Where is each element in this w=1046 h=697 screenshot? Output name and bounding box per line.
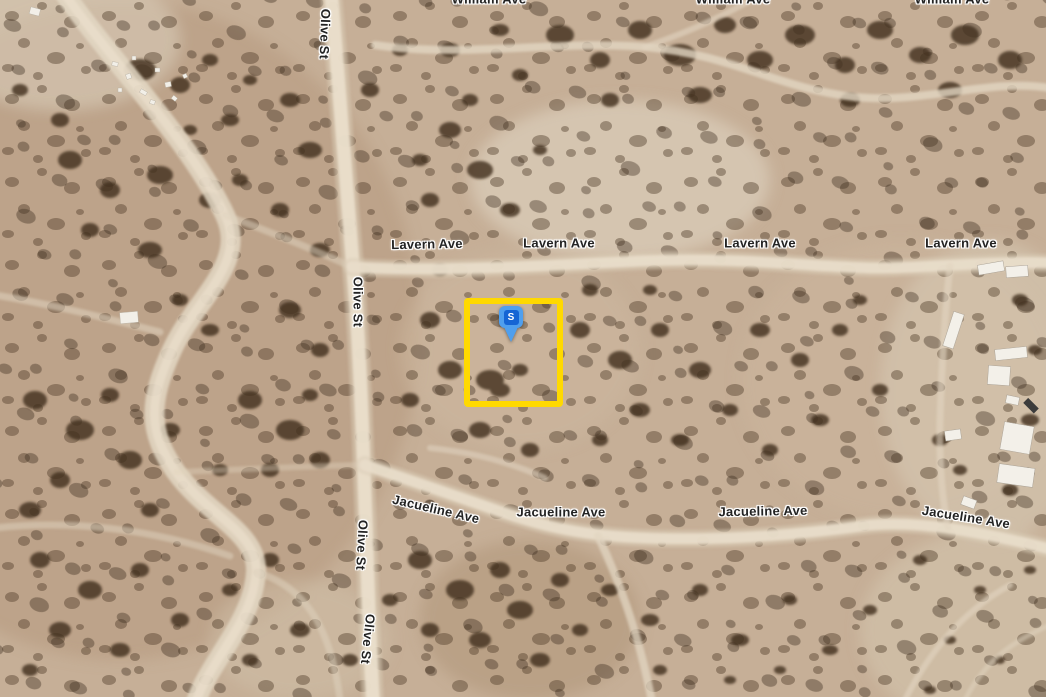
marker-label: S <box>504 310 519 325</box>
marker-balloon-icon: S <box>499 306 523 328</box>
street-label-lavern-ave: Lavern Ave <box>925 236 997 251</box>
satellite-map[interactable]: William Ave William Ave William Ave Oliv… <box>0 0 1046 697</box>
street-label-olive-st: Olive St <box>351 277 366 327</box>
street-label-william-ave: William Ave <box>915 0 990 7</box>
street-label-olive-st: Olive St <box>353 519 371 570</box>
street-label-lavern-ave: Lavern Ave <box>391 236 463 252</box>
street-label-lavern-ave: Lavern Ave <box>523 236 595 251</box>
street-label-jacueline-ave: Jacueline Ave <box>718 503 807 520</box>
street-label-william-ave: William Ave <box>696 0 771 7</box>
street-label-lavern-ave: Lavern Ave <box>724 236 796 251</box>
street-label-jacueline-ave: Jacueline Ave <box>516 505 605 520</box>
street-label-olive-st: Olive St <box>317 9 334 60</box>
marker-tail-icon <box>504 327 518 342</box>
map-marker-s[interactable]: S <box>499 306 523 349</box>
street-label-william-ave: William Ave <box>452 0 527 7</box>
